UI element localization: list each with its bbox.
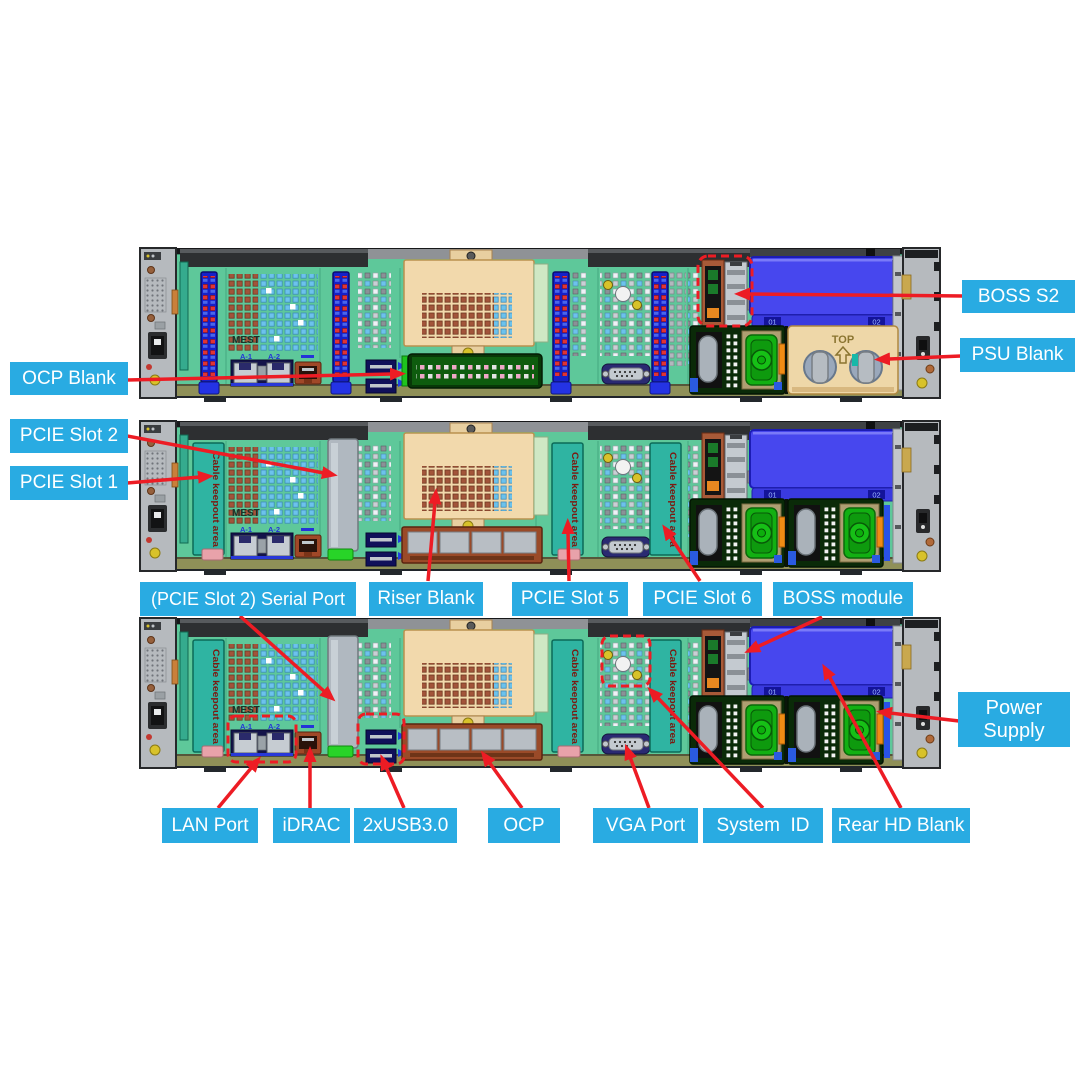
arrow-lan-port (218, 767, 252, 808)
arrow-usb (386, 767, 404, 808)
server-rear-view-middle (140, 421, 940, 575)
label-boss-s2: BOSS S2 (962, 280, 1075, 313)
server-rear-view-top (140, 248, 940, 402)
arrow-ocp (489, 762, 522, 808)
label-ocp: OCP (488, 808, 560, 843)
label-usb: 2xUSB3.0 (354, 808, 457, 843)
label-power-supply: Power Supply (958, 692, 1070, 747)
label-pcie-slot-1: PCIE Slot 1 (10, 466, 128, 500)
arrow-pcie-slot-5 (568, 532, 569, 581)
server-rear-view-bottom (140, 618, 940, 772)
label-psu-blank: PSU Blank (960, 338, 1075, 372)
label-rear-hd-blank: Rear HD Blank (832, 808, 970, 843)
label-boss-module: BOSS module (773, 582, 913, 616)
label-pcie-slot-6: PCIE Slot 6 (643, 582, 762, 616)
label-pcie-slot-5: PCIE Slot 5 (512, 582, 628, 616)
diagram-canvas: 01 02 TOP (0, 0, 1080, 1080)
label-pcie-slot-2: PCIE Slot 2 (10, 419, 128, 453)
label-lan-port: LAN Port (162, 808, 258, 843)
server-rear-diagram: 01 02 TOP (0, 0, 1080, 1080)
label-serial-port: (PCIE Slot 2) Serial Port (140, 582, 356, 616)
label-idrac: iDRAC (273, 808, 350, 843)
label-riser-blank: Riser Blank (369, 582, 483, 616)
label-vga-port: VGA Port (593, 808, 698, 843)
label-ocp-blank: OCP Blank (10, 362, 128, 395)
label-system-id: System ID (703, 808, 823, 843)
arrow-boss-s2 (748, 294, 963, 296)
